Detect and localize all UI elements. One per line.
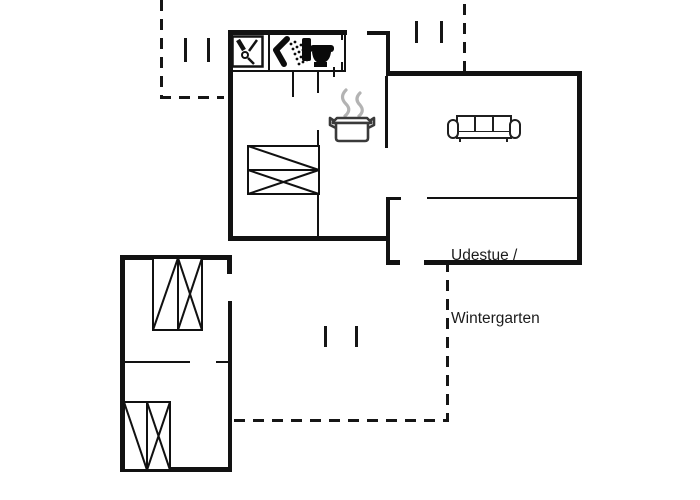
door-jamb-tick bbox=[341, 62, 343, 70]
double-bed-icon-annex-top bbox=[152, 257, 203, 331]
dashed-terrace-vertical bbox=[446, 261, 449, 421]
wall-kitchen-right bbox=[385, 76, 388, 148]
wall-udestue-top bbox=[427, 197, 577, 199]
opening-tick bbox=[355, 326, 358, 347]
wall-udestue-bottom-left bbox=[386, 260, 400, 265]
wall-annex-right-lower bbox=[228, 301, 232, 472]
opening-tick bbox=[324, 326, 327, 347]
dashed-terrace-horizontal bbox=[234, 419, 449, 422]
toilet-icon bbox=[301, 37, 335, 68]
wall-annex-middle-right bbox=[216, 361, 228, 363]
wall-kitchen-left-upper bbox=[317, 71, 319, 93]
steam-icon bbox=[343, 90, 363, 116]
wall-main-right bbox=[577, 71, 582, 265]
double-bed-icon-main bbox=[247, 145, 320, 195]
wall-main-bottom bbox=[228, 236, 390, 241]
floor-plan: Udestue / Wintergarten Anneks / Gæstehus bbox=[0, 0, 700, 500]
opening-tick bbox=[415, 21, 418, 43]
cooking-pot-icon bbox=[323, 84, 381, 144]
wall-annex-right-upper bbox=[227, 255, 232, 274]
wall-main-step-vertical bbox=[386, 31, 390, 76]
wall-annex-middle-left bbox=[123, 361, 190, 363]
room-label-udestue-line2: Wintergarten bbox=[451, 308, 540, 329]
room-label-anneks: Anneks / Gæstehus bbox=[103, 470, 175, 500]
room-label-udestue: Udestue / Wintergarten bbox=[451, 203, 540, 371]
dashed-boundary-top-right-vertical bbox=[463, 4, 466, 71]
opening-tick bbox=[184, 38, 187, 62]
wall-main-top-right bbox=[386, 71, 582, 76]
room-label-udestue-line1: Udestue / bbox=[451, 245, 540, 266]
wall-hall-stub bbox=[292, 71, 294, 97]
wall-udestue-left bbox=[386, 197, 390, 263]
opening-tick bbox=[440, 21, 443, 43]
door-jamb-tick bbox=[341, 34, 343, 40]
dashed-boundary-top-left-vertical bbox=[160, 0, 163, 99]
opening-tick bbox=[207, 38, 210, 62]
sofa-icon bbox=[445, 109, 523, 147]
dashed-boundary-top-left-horizontal bbox=[160, 96, 224, 99]
washbasin-icon bbox=[231, 35, 264, 69]
double-bed-icon-annex-bottom bbox=[123, 401, 171, 471]
door-jamb-tick bbox=[333, 67, 335, 77]
